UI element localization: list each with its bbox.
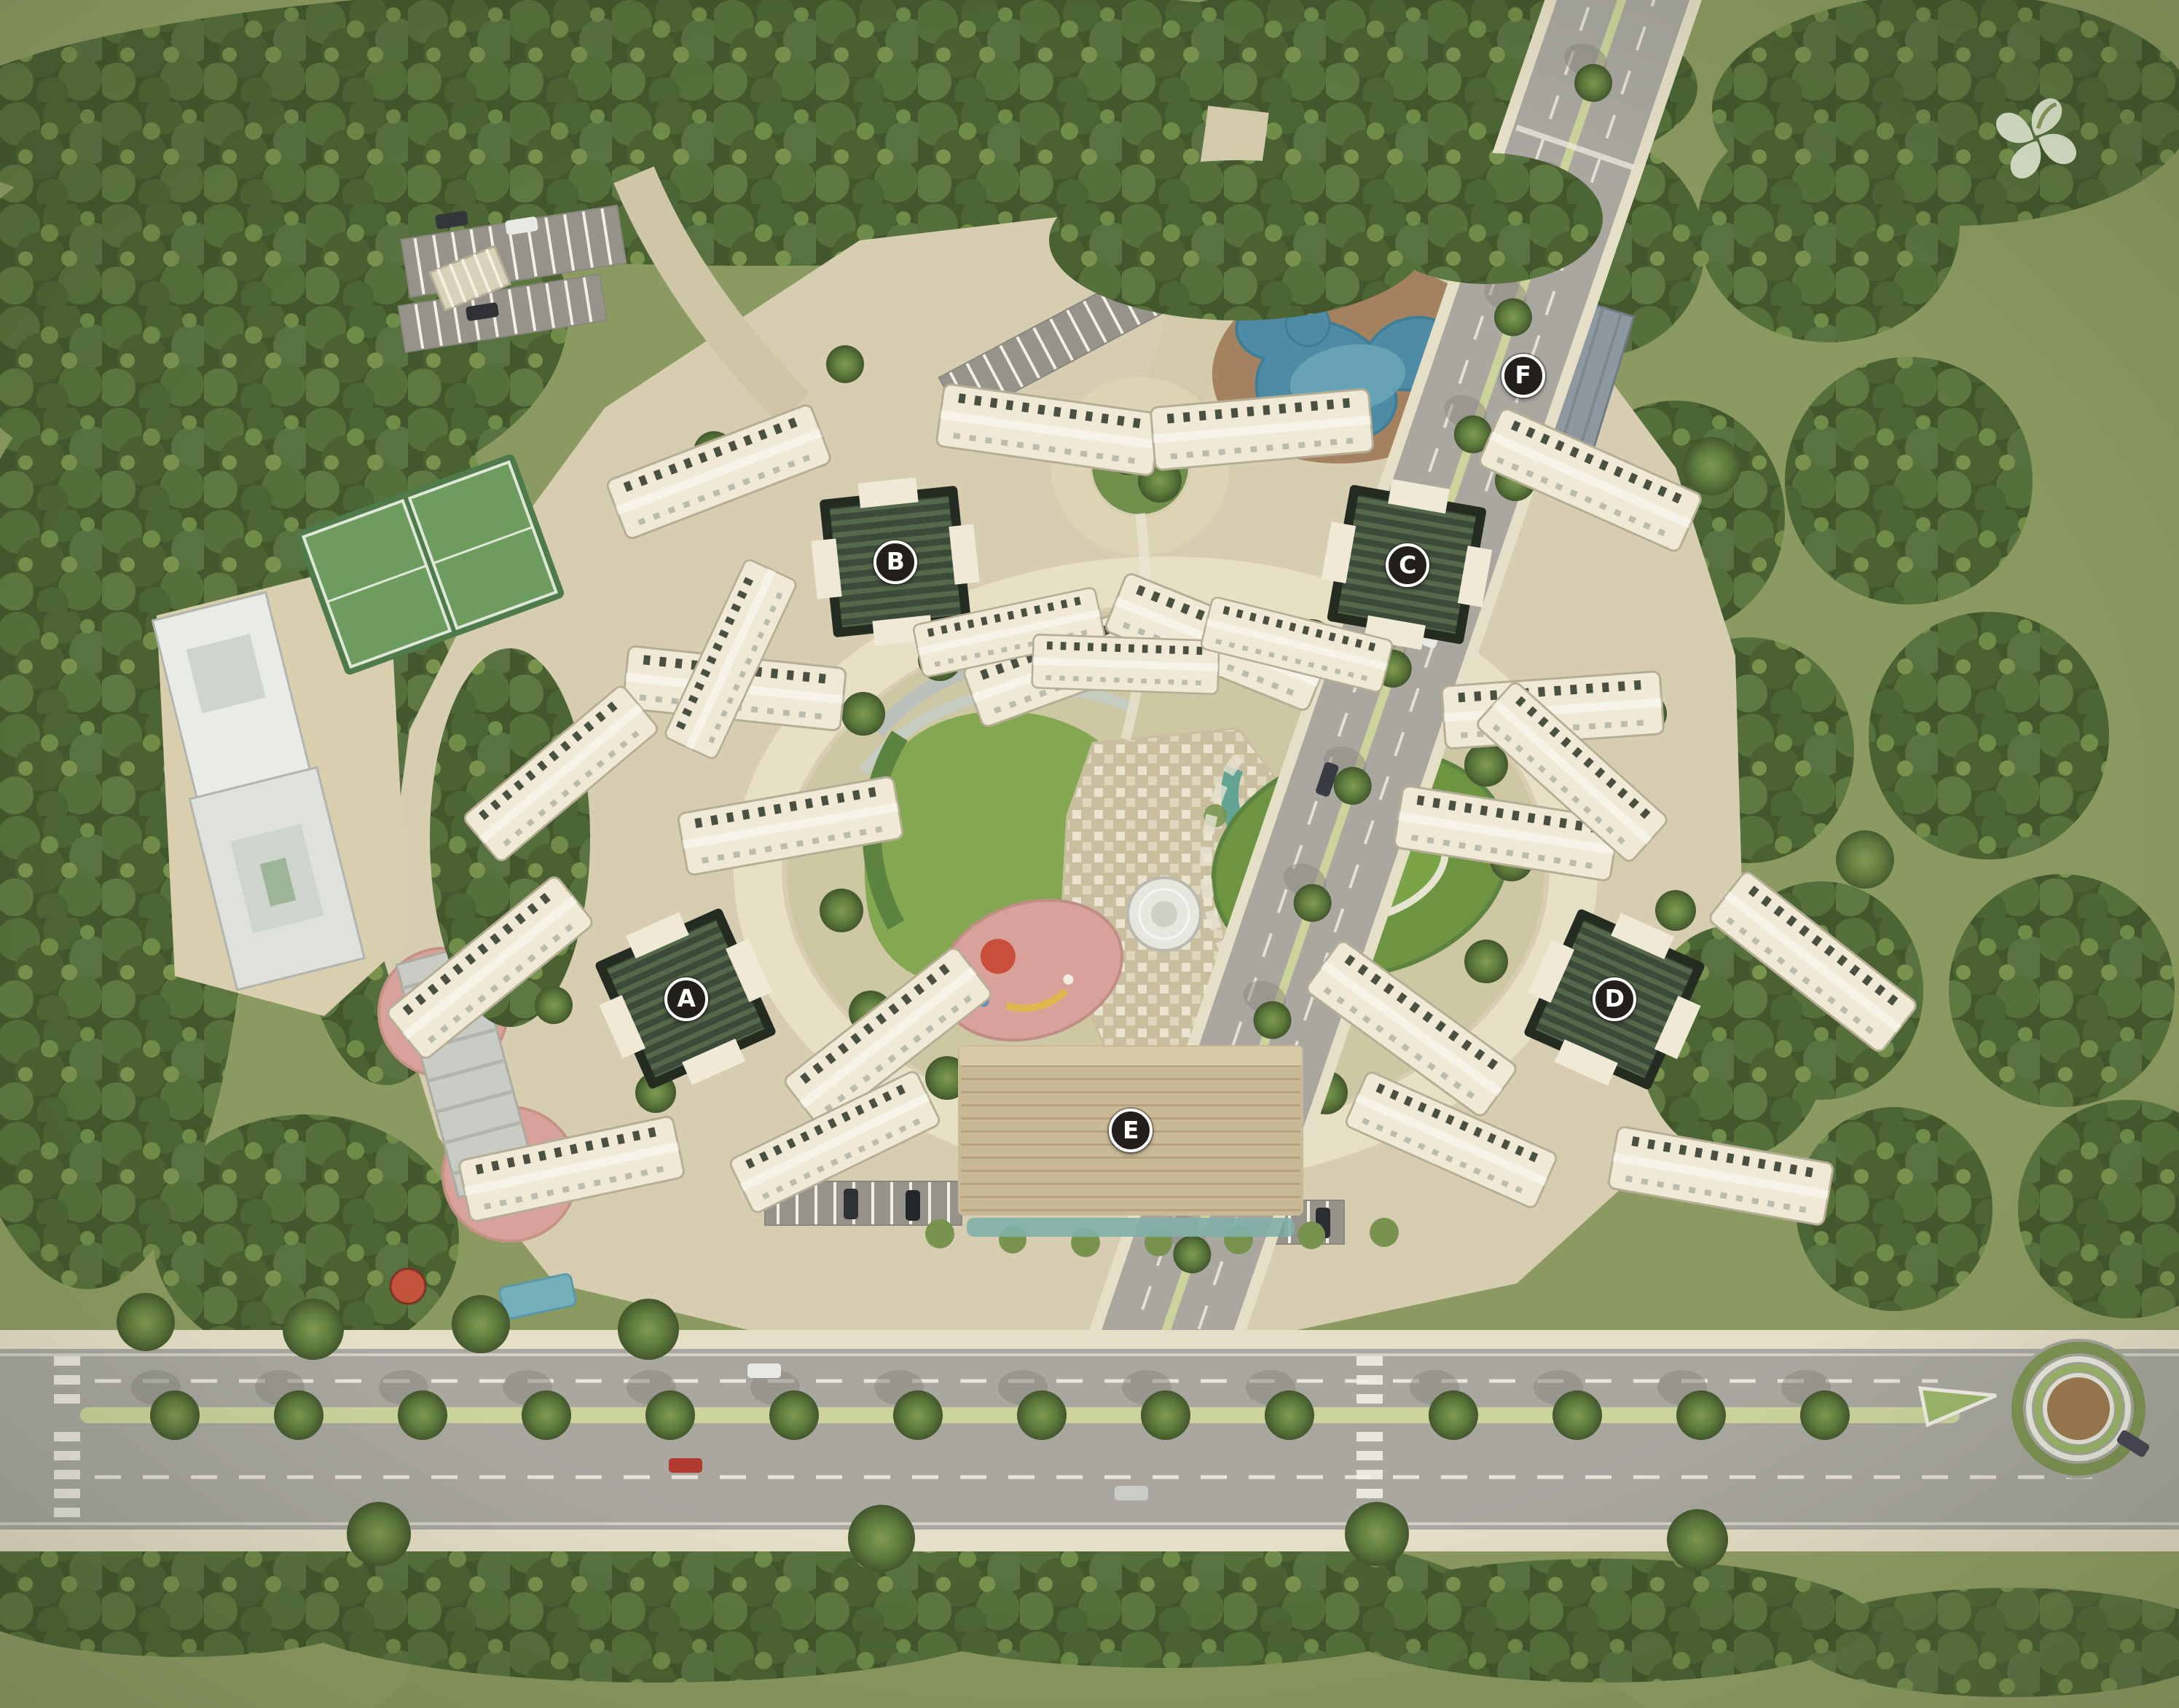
sidewalk-south	[0, 1530, 2179, 1551]
building-badge-c: C	[1386, 543, 1429, 587]
badge-letter: A	[677, 986, 696, 1010]
main-road	[0, 1330, 2179, 1551]
building-badge-b: B	[873, 540, 917, 584]
badge-letter: F	[1515, 363, 1531, 387]
developer-logo	[1996, 95, 2076, 182]
zebra-crossing	[54, 1356, 80, 1517]
badge-letter: B	[887, 549, 905, 573]
main-road-surface	[0, 1349, 2179, 1530]
zebra-crossing	[1357, 1356, 1383, 1517]
site-plan-canvas	[0, 0, 2179, 1708]
hall-water-strip	[967, 1218, 1295, 1237]
building-badge-a: A	[664, 977, 708, 1021]
badge-letter: D	[1605, 986, 1625, 1010]
building-badge-f: F	[1501, 354, 1545, 398]
play-house-icon	[390, 1269, 425, 1304]
badge-letter: E	[1123, 1118, 1139, 1142]
badge-letter: C	[1399, 553, 1416, 577]
site-plan-rendering: A B C D E F	[0, 0, 2179, 1708]
fountain-center	[1151, 901, 1177, 927]
building-badge-d: D	[1593, 977, 1636, 1021]
flower-petal-icon	[1996, 95, 2076, 182]
